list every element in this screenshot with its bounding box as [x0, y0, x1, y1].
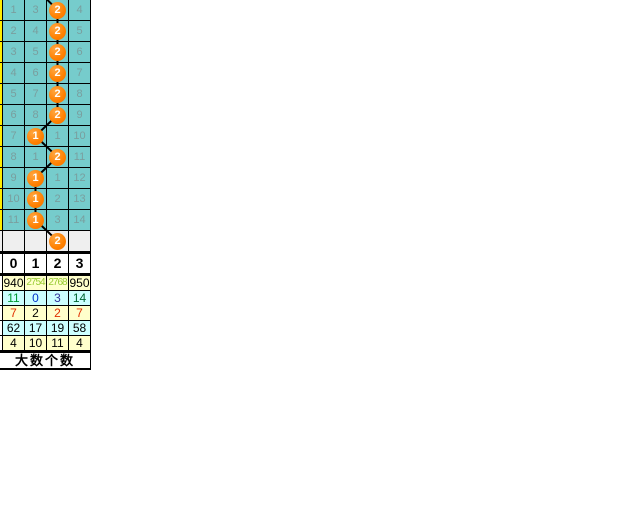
trend-cell: 6: [3, 105, 24, 125]
stats-cell: 7: [69, 306, 90, 320]
trend-chart: 1342453564675786897110811191121021311314…: [0, 0, 91, 370]
trend-cell: 7: [3, 126, 24, 146]
draw-circle: 2: [49, 2, 66, 19]
trend-cell: 7: [25, 84, 46, 104]
trend-cell: 13: [69, 189, 90, 209]
stats-cell: 2768: [47, 276, 68, 290]
draw-circle: 2: [49, 233, 66, 250]
stats-header-cell: 0: [3, 254, 24, 273]
draw-circle: 2: [49, 149, 66, 166]
trend-row: 11314: [0, 210, 91, 230]
trend-table: 1342453564675786897110811191121021311314: [0, 0, 91, 251]
draw-circle: 2: [49, 86, 66, 103]
trend-row: [0, 231, 91, 251]
row-edge-sliver: [0, 321, 2, 335]
row-edge-sliver: [0, 0, 2, 20]
trend-cell: 10: [3, 189, 24, 209]
stats-header-cell: 3: [69, 254, 90, 273]
row-edge-sliver: [0, 147, 2, 167]
stats-row: 94027542768950: [0, 276, 91, 290]
trend-cell: 6: [69, 42, 90, 62]
stats-cell: 14: [69, 291, 90, 305]
big-number-count-label: 大数个数: [0, 351, 90, 368]
trend-cell: 1: [25, 147, 46, 167]
trend-cell: 6: [25, 63, 46, 83]
trend-cell: 11: [3, 210, 24, 230]
stats-cell: 62: [3, 321, 24, 335]
trend-cell: 3: [47, 210, 68, 230]
trend-row: 134: [0, 0, 91, 20]
stats-header-cell: 2: [47, 254, 68, 273]
trend-cell: [3, 231, 24, 251]
stats-cell: 58: [69, 321, 90, 335]
trend-cell: 9: [3, 168, 24, 188]
row-edge-sliver: [0, 306, 2, 320]
trend-cell: 3: [25, 0, 46, 20]
row-edge-sliver: [0, 63, 2, 83]
trend-cell: 4: [69, 0, 90, 20]
draw-circle: 1: [27, 191, 44, 208]
stats-cell: 2754: [25, 276, 46, 290]
trend-cell: [69, 231, 90, 251]
stats-header-row: 0123: [0, 252, 91, 275]
row-edge-sliver: [0, 210, 2, 230]
stats-row: 7227: [0, 306, 91, 320]
stats-cell: 10: [25, 336, 46, 350]
stats-row: 62171958: [0, 321, 91, 335]
trend-row: 578: [0, 84, 91, 104]
stats-cell: 950: [69, 276, 90, 290]
trend-cell: 8: [3, 147, 24, 167]
row-edge-sliver: [0, 336, 2, 350]
trend-cell: 3: [3, 42, 24, 62]
trend-cell: 12: [69, 168, 90, 188]
stats-cell: 7: [3, 306, 24, 320]
trend-row: 356: [0, 42, 91, 62]
stats-cell: 4: [3, 336, 24, 350]
stats-header-cell: 1: [25, 254, 46, 273]
stats-cell: 11: [47, 336, 68, 350]
trend-cell: 2: [47, 189, 68, 209]
trend-cell: 5: [69, 21, 90, 41]
trend-cell: 11: [69, 147, 90, 167]
trend-cell: 4: [25, 21, 46, 41]
stats-cell: 17: [25, 321, 46, 335]
stats-cell: 2: [47, 306, 68, 320]
trend-cell: 10: [69, 126, 90, 146]
row-edge-sliver: [0, 189, 2, 209]
draw-circle: 1: [27, 128, 44, 145]
row-edge-sliver: [0, 254, 2, 273]
trend-row: 10213: [0, 189, 91, 209]
row-edge-sliver: [0, 21, 2, 41]
stats-cell: 0: [25, 291, 46, 305]
stats-table: 0123 94027542768950110314722762171958410…: [0, 252, 91, 368]
stats-cell: 940: [3, 276, 24, 290]
trend-cell: 5: [3, 84, 24, 104]
row-edge-sliver: [0, 168, 2, 188]
trend-row: 467: [0, 63, 91, 83]
row-edge-sliver: [0, 105, 2, 125]
trend-cell: 7: [69, 63, 90, 83]
row-edge-sliver: [0, 291, 2, 305]
row-edge-sliver: [0, 276, 2, 290]
trend-cell: 8: [69, 84, 90, 104]
trend-cell: 1: [3, 0, 24, 20]
trend-cell: 5: [25, 42, 46, 62]
trend-row: 8111: [0, 147, 91, 167]
trend-cell: 8: [25, 105, 46, 125]
screen: 1342453564675786897110811191121021311314…: [0, 0, 640, 512]
trend-row: 7110: [0, 126, 91, 146]
trend-row: 689: [0, 105, 91, 125]
trend-cell: 4: [3, 63, 24, 83]
stats-cell: 19: [47, 321, 68, 335]
trend-cell: 1: [47, 168, 68, 188]
stats-row: 110314: [0, 291, 91, 305]
trend-cell: 2: [3, 21, 24, 41]
row-edge-sliver: [0, 126, 2, 146]
trend-row: 9112: [0, 168, 91, 188]
draw-circle: 2: [49, 65, 66, 82]
trend-row: 245: [0, 21, 91, 41]
stats-row: 410114: [0, 336, 91, 350]
trend-cell: [25, 231, 46, 251]
row-edge-sliver: [0, 84, 2, 104]
trend-cell: 1: [47, 126, 68, 146]
draw-circle: 1: [27, 212, 44, 229]
draw-circle: 2: [49, 44, 66, 61]
draw-circle: 2: [49, 107, 66, 124]
draw-circle: 2: [49, 23, 66, 40]
row-edge-sliver: [0, 42, 2, 62]
trend-cell: 14: [69, 210, 90, 230]
draw-circle: 1: [27, 170, 44, 187]
stats-cell: 3: [47, 291, 68, 305]
trend-cell: 9: [69, 105, 90, 125]
row-edge-sliver: [0, 231, 2, 251]
stats-cell: 4: [69, 336, 90, 350]
stats-cell: 2: [25, 306, 46, 320]
stats-cell: 11: [3, 291, 24, 305]
